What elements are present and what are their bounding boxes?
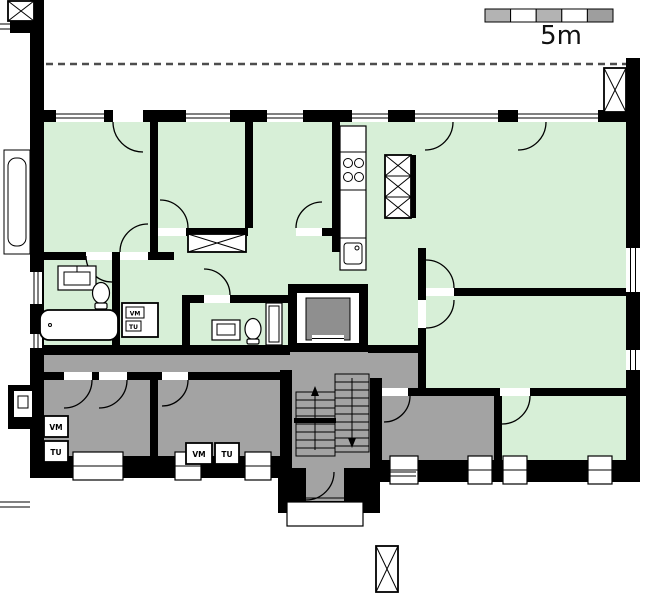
chimney-icon <box>604 68 626 112</box>
wall-south-rooms-b <box>408 388 500 396</box>
window <box>518 110 598 122</box>
laundry-rooms-fill <box>36 352 290 464</box>
wall-laundry-a <box>42 372 64 380</box>
floor-plan: VM TU <box>0 0 652 596</box>
wall-lobby-north <box>368 345 418 353</box>
door-opening <box>418 300 426 328</box>
wall-south-rooms-c <box>530 388 626 396</box>
window <box>468 456 492 484</box>
elevator-car <box>306 298 350 340</box>
window <box>30 272 42 304</box>
wall-living-south <box>454 288 626 296</box>
washbasin-icon <box>212 320 240 340</box>
window <box>588 456 612 484</box>
window <box>415 110 498 122</box>
wall-green-gray-divider <box>42 345 290 355</box>
scale-segment <box>511 9 537 22</box>
elevator <box>288 284 368 352</box>
door-opening <box>120 252 148 260</box>
window <box>626 350 640 370</box>
washbasin-icon <box>58 266 96 290</box>
door-opening <box>162 372 188 380</box>
floor-plan-page: VM TU <box>0 0 652 596</box>
dryer-label: TU <box>129 324 138 331</box>
wall-laundry-b <box>92 372 99 380</box>
bathtub-icon <box>40 310 118 340</box>
door-opening <box>296 228 322 236</box>
window <box>503 456 527 484</box>
door-opening <box>64 372 92 380</box>
wall-bed2-bed3 <box>245 122 253 228</box>
wall-laundry-rooms-divider <box>150 380 158 458</box>
door-opening <box>204 295 230 303</box>
dryer-label: TU <box>221 450 232 459</box>
dryer-label: TU <box>50 448 61 457</box>
door-opening <box>500 388 530 396</box>
window <box>626 248 640 292</box>
wall-hall-east-a <box>418 248 426 300</box>
wall-laundry-c <box>127 372 162 380</box>
window <box>186 110 230 122</box>
chimney-icon <box>8 1 34 21</box>
wall-stair-east <box>370 378 382 470</box>
window <box>352 110 388 122</box>
door-opening <box>382 388 408 396</box>
wall-bottom-rooms-divider <box>494 396 502 460</box>
shower-icon <box>266 303 282 345</box>
wall-bath2-north-b <box>230 295 290 303</box>
window <box>30 334 42 348</box>
window <box>390 456 418 484</box>
window <box>73 452 123 480</box>
wall-bath2-north-a <box>190 295 204 303</box>
door-opening <box>86 252 112 260</box>
hall-closet-vm-tu: VM TU <box>122 303 158 337</box>
window <box>245 452 271 480</box>
west-shaft-icon <box>14 391 32 417</box>
toilet-icon <box>93 283 110 310</box>
scale-bar: 5m <box>485 9 613 51</box>
chimney-icon <box>376 546 398 592</box>
wall-south-bed1-c <box>148 252 174 260</box>
northwest-chimney-base <box>10 21 36 33</box>
window <box>56 110 104 122</box>
toilet-icon <box>245 319 261 345</box>
porch-outline <box>287 502 363 526</box>
scale-label: 5m <box>540 21 582 51</box>
washing-machine-label: VM <box>130 311 141 318</box>
wall-kitchen-west <box>332 122 340 252</box>
washing-machine-label: VM <box>49 423 62 432</box>
door-opening <box>158 228 186 236</box>
door-opening <box>99 372 127 380</box>
wardrobe-icon <box>188 234 246 252</box>
wall-hall-east-b <box>418 328 426 392</box>
laundry-room-right-appliances: VM TU <box>186 443 239 464</box>
scale-segment <box>587 9 613 22</box>
door-opening <box>426 288 454 296</box>
wall-bed1-bed2 <box>150 122 158 252</box>
washing-machine-label: VM <box>192 450 205 459</box>
wall-south-bed1-a <box>42 252 86 260</box>
balcony-door-opening <box>113 110 143 122</box>
bottom-center-room-fill <box>380 392 497 464</box>
balcony-outline <box>4 150 30 254</box>
scale-segment <box>485 9 511 22</box>
tall-cabinet-icon <box>385 155 416 218</box>
bottom-right-room-fill <box>497 392 632 464</box>
wall-laundry-d <box>188 372 290 380</box>
window <box>267 110 303 122</box>
